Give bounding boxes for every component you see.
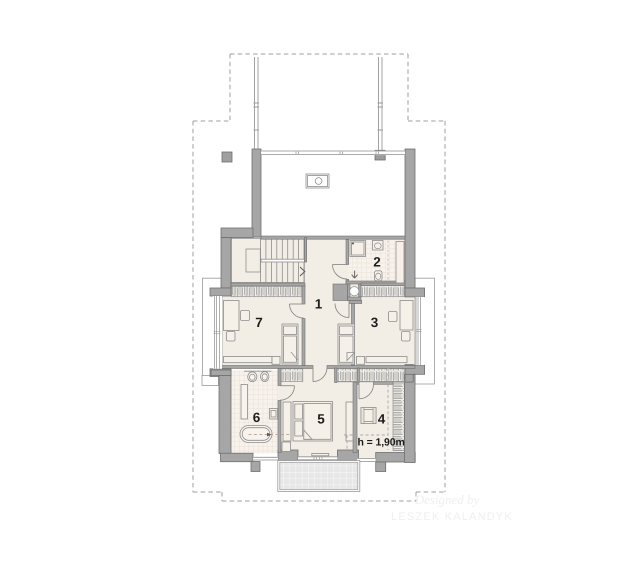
svg-text:5: 5 xyxy=(317,412,325,427)
svg-text:h = 1,90m: h = 1,90m xyxy=(358,436,405,448)
svg-text:2: 2 xyxy=(373,255,381,270)
svg-text:1: 1 xyxy=(315,297,323,312)
svg-text:6: 6 xyxy=(253,410,261,425)
svg-text:4: 4 xyxy=(378,412,386,427)
svg-text:LESZEK KALANDYK: LESZEK KALANDYK xyxy=(391,511,513,523)
svg-text:Designed by: Designed by xyxy=(414,492,480,507)
svg-text:3: 3 xyxy=(371,315,379,330)
svg-text:7: 7 xyxy=(255,315,263,330)
